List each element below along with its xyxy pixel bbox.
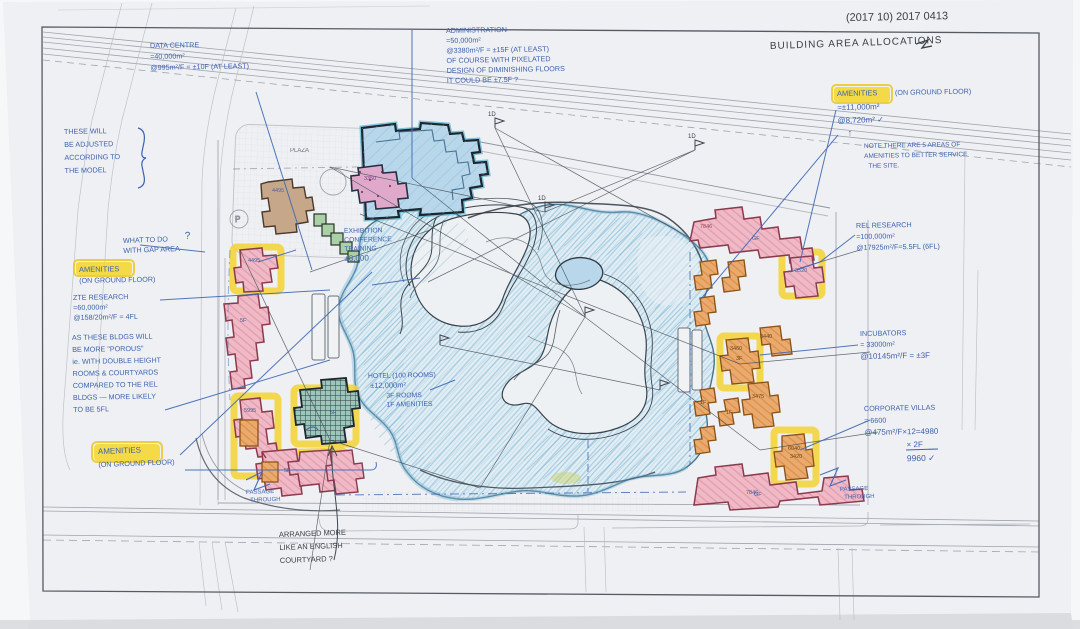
svg-text:1D: 1D xyxy=(488,112,496,118)
svg-text:OF COURSE WITH PIXELATED: OF COURSE WITH PIXELATED xyxy=(446,54,550,65)
svg-text:4495: 4495 xyxy=(248,258,260,264)
svg-text:?: ? xyxy=(185,231,191,242)
svg-text:4495: 4495 xyxy=(272,188,284,194)
svg-text:±12,000m²: ±12,000m² xyxy=(370,380,406,390)
svg-text:@10145m²/F = ±3F: @10145m²/F = ±3F xyxy=(860,351,930,361)
svg-text:P: P xyxy=(235,215,240,224)
svg-text:@17925m²/F=5.5FL (6FL): @17925m²/F=5.5FL (6FL) xyxy=(856,242,940,252)
svg-text:3420: 3420 xyxy=(790,454,802,460)
svg-text:1D: 1D xyxy=(538,196,546,202)
svg-text:ADMINISTRATION: ADMINISTRATION xyxy=(446,25,507,35)
svg-text:EXHIBITION: EXHIBITION xyxy=(344,227,383,235)
svg-text:3F ROOMS: 3F ROOMS xyxy=(386,392,422,400)
svg-text:3F: 3F xyxy=(736,356,743,362)
svg-text:9960 ✓: 9960 ✓ xyxy=(907,453,936,463)
svg-text:PASSAGE: PASSAGE xyxy=(840,486,868,493)
svg-text:GF: GF xyxy=(752,236,760,242)
svg-text:AMENITIES: AMENITIES xyxy=(98,445,141,455)
svg-text:↑: ↑ xyxy=(848,128,853,138)
svg-text:=100,000m²: =100,000m² xyxy=(856,231,895,241)
svg-text:GF: GF xyxy=(754,492,762,498)
svg-text:ROOMS & COURTYARDS: ROOMS & COURTYARDS xyxy=(73,367,159,377)
svg-text:TO BE 5FL: TO BE 5FL xyxy=(73,404,109,414)
svg-text:(2017 10) 2017 0413: (2017 10) 2017 0413 xyxy=(846,10,948,24)
svg-text:1F: 1F xyxy=(726,410,733,416)
svg-text:@3380m²/F = ±15F (AT LEAST): @3380m²/F = ±15F (AT LEAST) xyxy=(446,44,549,55)
svg-text:INCUBATORS: INCUBATORS xyxy=(860,328,907,338)
svg-text:THESE WILL: THESE WILL xyxy=(64,126,107,136)
svg-text:=±11,000m²: =±11,000m² xyxy=(837,102,880,112)
svg-text:1D: 1D xyxy=(688,134,696,140)
svg-text:THROUGH: THROUGH xyxy=(844,494,875,501)
svg-text:AMENITIES: AMENITIES xyxy=(837,88,878,98)
svg-text:=40,000m²: =40,000m² xyxy=(150,51,185,61)
svg-text:@8,720m² ✓: @8,720m² ✓ xyxy=(837,115,884,125)
svg-text:5F: 5F xyxy=(284,468,291,474)
svg-text:3520: 3520 xyxy=(795,268,807,274)
svg-text:THE MODEL: THE MODEL xyxy=(65,165,107,175)
svg-text:WHAT TO DO: WHAT TO DO xyxy=(123,234,169,245)
svg-text:@158/20m²/F = 4FL: @158/20m²/F = 4FL xyxy=(73,312,138,322)
svg-text:ie. WITH DOUBLE HEIGHT: ie. WITH DOUBLE HEIGHT xyxy=(72,355,161,366)
svg-text:=50,000m²: =50,000m² xyxy=(446,35,481,45)
svg-text:=60,000m²: =60,000m² xyxy=(73,302,108,312)
svg-text:BE ADJUSTED: BE ADJUSTED xyxy=(64,139,113,149)
svg-text:AMENITIES: AMENITIES xyxy=(79,264,120,274)
svg-text:PLAZA: PLAZA xyxy=(290,148,309,154)
svg-text:3440: 3440 xyxy=(760,334,772,340)
svg-text:IT COULD BE ±7.5F ?: IT COULD BE ±7.5F ? xyxy=(447,75,518,85)
svg-text:3350: 3350 xyxy=(364,176,376,182)
svg-text:THROUGH: THROUGH xyxy=(250,497,281,504)
svg-text:× 2F: × 2F xyxy=(907,440,923,449)
svg-text:(ON GROUND FLOOR): (ON GROUND FLOOR) xyxy=(895,87,971,97)
svg-text:COURTYARD ?: COURTYARD ? xyxy=(280,554,333,565)
svg-text:3460: 3460 xyxy=(730,346,742,352)
svg-text:5F: 5F xyxy=(330,410,337,416)
svg-text:= 6600: = 6600 xyxy=(864,416,886,425)
svg-text:AS THESE BLDGS WILL: AS THESE BLDGS WILL xyxy=(72,332,153,342)
svg-text:BLDGS — MORE LIKELY: BLDGS — MORE LIKELY xyxy=(73,392,156,402)
svg-text:ZTE RESEARCH: ZTE RESEARCH xyxy=(73,292,129,302)
svg-text:7846: 7846 xyxy=(700,224,712,230)
svg-text:3475: 3475 xyxy=(752,394,764,400)
svg-text:ACCORDING TO: ACCORDING TO xyxy=(64,152,120,162)
svg-text:CONFERENCE: CONFERENCE xyxy=(344,236,392,244)
svg-text:DATA CENTRE: DATA CENTRE xyxy=(150,40,200,50)
svg-text:REL RESEARCH: REL RESEARCH xyxy=(856,220,912,230)
svg-text:(ON GROUND FLOOR): (ON GROUND FLOOR) xyxy=(79,275,155,285)
svg-text:±8,000: ±8,000 xyxy=(344,254,369,263)
svg-text:1F: 1F xyxy=(700,400,707,406)
svg-text:5995: 5995 xyxy=(244,408,256,414)
svg-text:PASSAGE: PASSAGE xyxy=(246,489,274,496)
svg-text:5F: 5F xyxy=(240,318,247,324)
svg-text:@995m²/F = ±10F (AT LEAST): @995m²/F = ±10F (AT LEAST) xyxy=(150,61,249,72)
svg-text:CORPORATE VILLAS: CORPORATE VILLAS xyxy=(864,403,936,413)
svg-text:HOTEL (100 ROOMS): HOTEL (100 ROOMS) xyxy=(368,372,436,380)
svg-text:1F AMENITIES: 1F AMENITIES xyxy=(386,401,433,409)
svg-text:= 33000m²: = 33000m² xyxy=(860,339,895,349)
svg-text:6040: 6040 xyxy=(788,446,800,452)
svg-text:@475m²/F×12=4980: @475m²/F×12=4980 xyxy=(864,427,939,437)
svg-text:TRAINING: TRAINING xyxy=(344,245,377,253)
svg-text:COMPARED TO THE REL: COMPARED TO THE REL xyxy=(73,380,158,390)
svg-text:BE MORE "POROUS": BE MORE "POROUS" xyxy=(72,344,144,354)
svg-text:THE SITE.: THE SITE. xyxy=(868,162,899,170)
